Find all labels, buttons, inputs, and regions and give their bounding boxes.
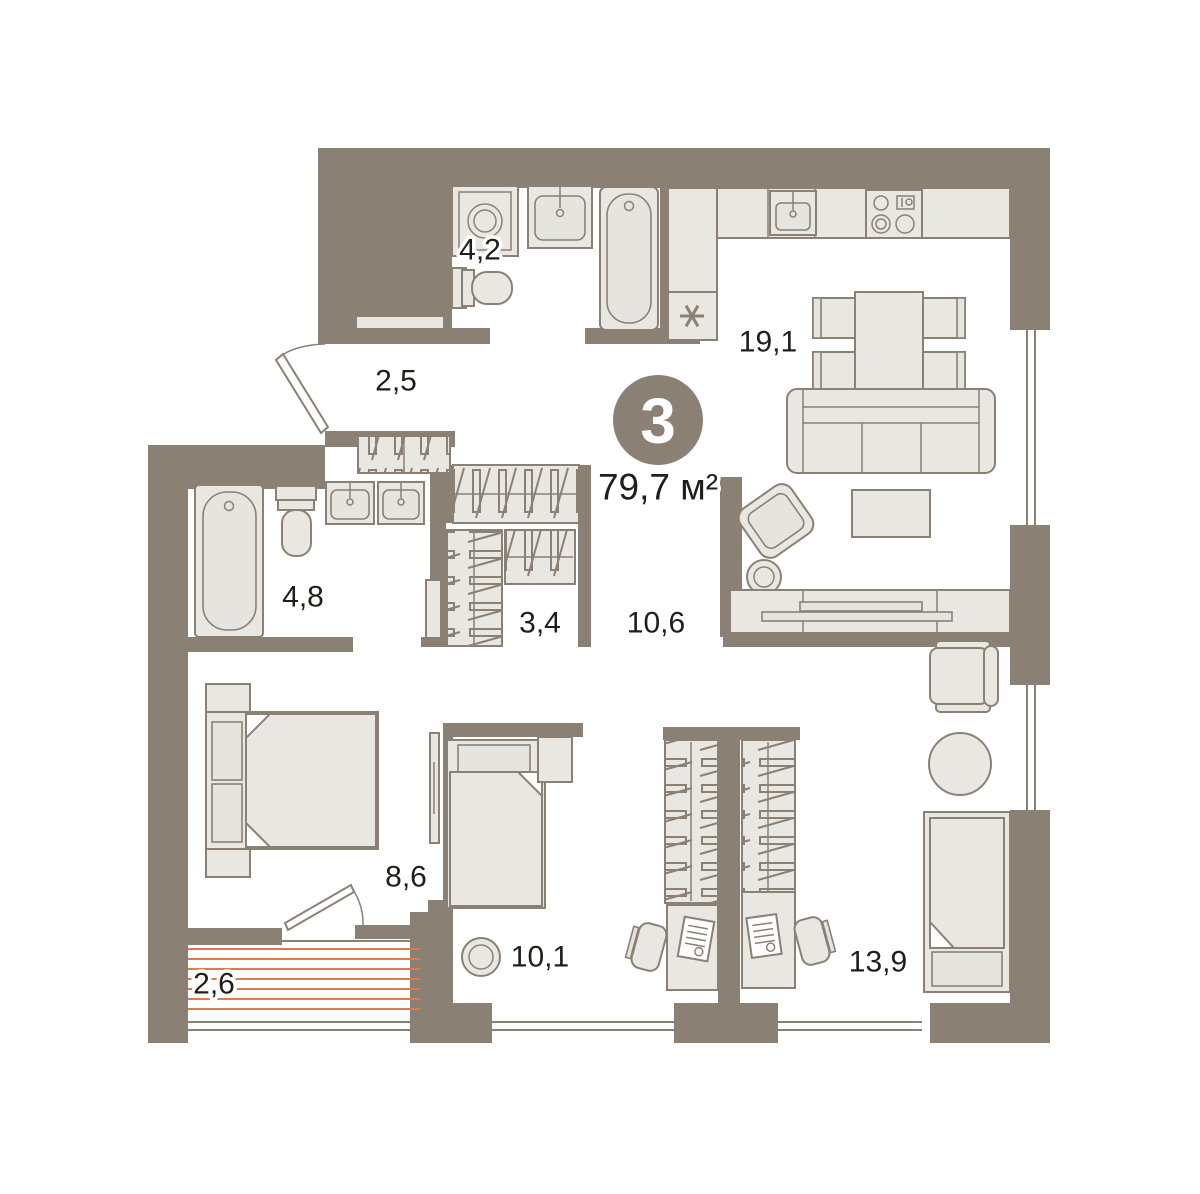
laptop-icon — [678, 917, 714, 962]
pouf-2 — [929, 733, 991, 795]
label-child-room-1: 10,1 — [511, 941, 569, 974]
desk-chair-1 — [624, 920, 669, 973]
bathroom-door-leaf — [426, 580, 441, 638]
pouf-1 — [462, 938, 500, 976]
bathtub-large-icon — [195, 485, 263, 637]
tv-icon — [762, 612, 952, 621]
entrance-door — [276, 344, 328, 433]
desk-1 — [667, 905, 718, 990]
single-bed-2 — [924, 812, 1010, 992]
child-room-1-furniture — [447, 737, 718, 990]
wardrobe-2 — [742, 740, 795, 903]
label-hallway: 10,6 — [627, 607, 685, 640]
kitchen-counter — [717, 188, 1010, 238]
side-table — [747, 560, 781, 594]
rooms-count: 3 — [640, 385, 676, 457]
nightstand — [206, 849, 250, 877]
label-balcony: 2,6 — [193, 968, 235, 1001]
bathroom-large-furniture — [195, 482, 424, 637]
kitchen-cabinet — [668, 188, 717, 292]
armchair — [734, 479, 818, 562]
floor-plan: 3 79,7 м² 2,5 4,2 19,1 4,8 3,4 10,6 8,6 … — [0, 0, 1200, 1194]
shoe-cabinet — [358, 436, 450, 473]
toilet-large-icon — [276, 486, 316, 556]
label-kitchen-living: 19,1 — [739, 326, 797, 359]
label-bathroom-small: 4,2 — [459, 234, 501, 267]
armchair-2 — [930, 641, 998, 712]
total-area: 79,7 м² — [598, 467, 718, 508]
coffee-table — [852, 490, 930, 537]
desk-2 — [742, 892, 795, 988]
stove-icon — [866, 190, 922, 238]
sofa — [787, 389, 995, 473]
single-bed-1 — [447, 740, 545, 908]
nightstand — [206, 684, 250, 712]
toilet-small-icon — [452, 268, 512, 308]
label-child-room-2: 13,9 — [849, 946, 907, 979]
balcony-door — [285, 885, 363, 930]
child-room-2-furniture — [742, 641, 1010, 992]
label-bedroom: 8,6 — [385, 861, 427, 894]
bathtub-small-icon — [600, 187, 658, 330]
closet-left — [447, 530, 502, 646]
sink-icon — [528, 186, 592, 248]
shelving-top — [453, 465, 579, 523]
bedroom-furniture — [206, 684, 439, 877]
label-bathroom-large: 4,8 — [282, 581, 324, 614]
bed-cabinet — [538, 737, 572, 782]
wall-tv-icon — [430, 733, 439, 843]
window-room1-bottom — [492, 1022, 674, 1030]
floor-plan-svg: 3 79,7 м² 2,5 4,2 19,1 4,8 3,4 10,6 8,6 … — [0, 0, 1200, 1194]
closet-mid — [505, 530, 575, 584]
fridge-icon — [668, 292, 717, 340]
tv-stand — [730, 590, 1010, 633]
desk-chair-2 — [793, 914, 838, 967]
double-bed — [206, 712, 378, 849]
wardrobe-1 — [665, 740, 718, 903]
kitchen-living-furniture — [668, 188, 1010, 633]
label-wardrobe: 3,4 — [519, 607, 561, 640]
rooms-badge: 3 — [613, 375, 703, 465]
kitchen-sink-icon — [770, 191, 816, 235]
double-sink-icon — [326, 482, 424, 524]
window-room2-right — [1027, 685, 1035, 810]
label-entry-hall: 2,5 — [375, 365, 417, 398]
window-kitchen-right — [1027, 330, 1035, 525]
laptop-icon — [746, 914, 781, 958]
window-room2-bottom — [778, 1022, 922, 1030]
